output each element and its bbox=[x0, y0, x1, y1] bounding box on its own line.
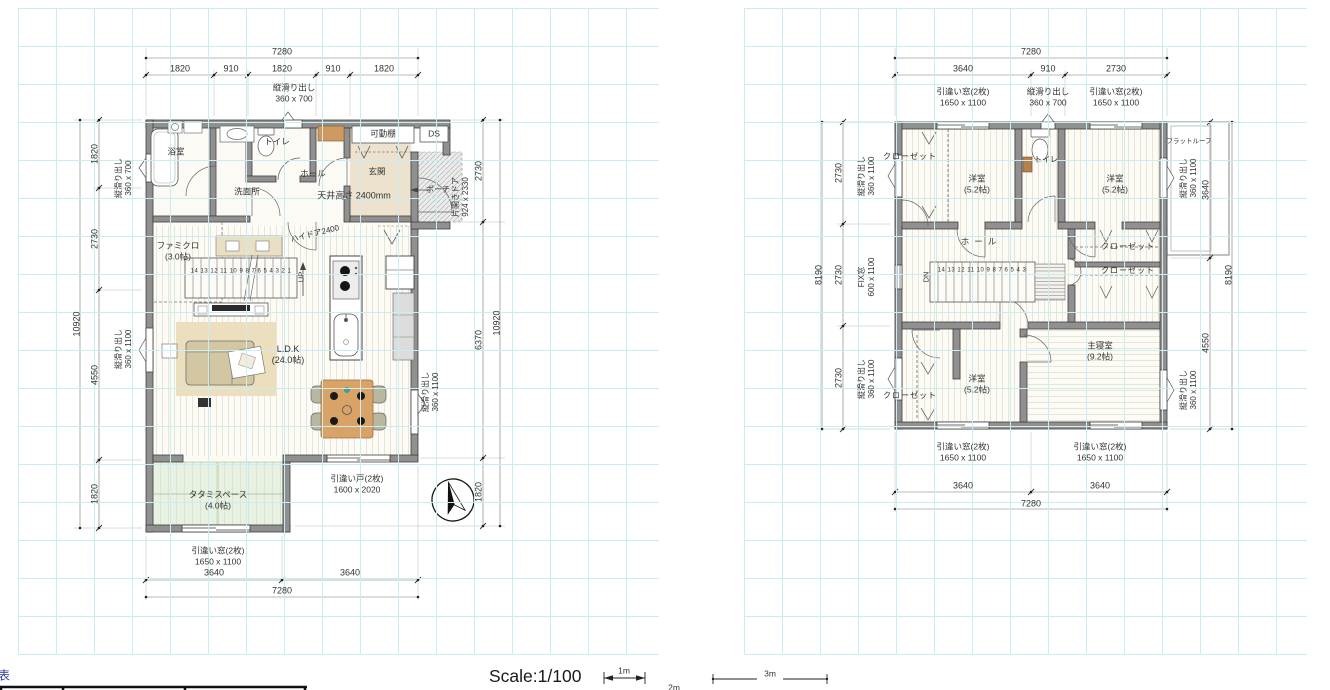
floor1-plan bbox=[74, 48, 505, 600]
floor-plan-canvas: 7280182091018209101820縦滑り出し 360 x 700可動棚… bbox=[0, 0, 1330, 690]
floor1-stairs bbox=[185, 255, 306, 301]
scale-bars bbox=[604, 672, 828, 684]
floorplan-geometry bbox=[0, 0, 1330, 690]
floor2-plan bbox=[816, 48, 1236, 512]
north-arrow-compass bbox=[427, 474, 478, 525]
floor2-stairs bbox=[930, 262, 1065, 302]
